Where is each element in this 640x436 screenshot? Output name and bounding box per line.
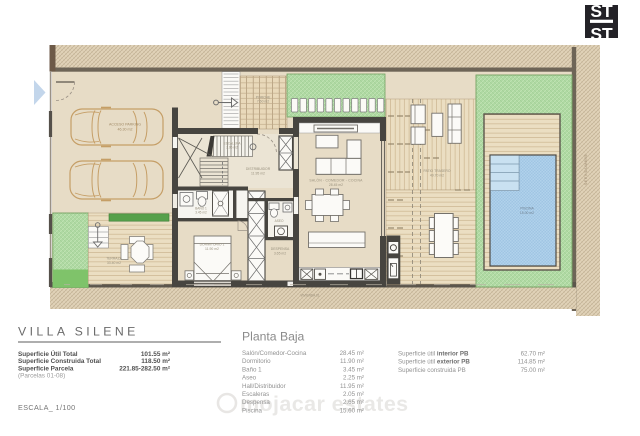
svg-text:28.45 m2: 28.45 m2 bbox=[329, 183, 343, 187]
svg-text:7.60 m2: 7.60 m2 bbox=[257, 100, 269, 104]
svg-text:Superficie construida PB: Superficie construida PB bbox=[398, 367, 466, 374]
svg-text:2.05 m2: 2.05 m2 bbox=[226, 146, 238, 150]
svg-text:2.05 m²: 2.05 m² bbox=[343, 391, 364, 398]
svg-text:Superficie Parcela: Superficie Parcela bbox=[18, 365, 74, 372]
svg-text:Salón/Comedor-Cocina: Salón/Comedor-Cocina bbox=[242, 350, 307, 357]
svg-text:TERRAZA: TERRAZA bbox=[106, 257, 123, 261]
svg-text:DORMITORIO 1: DORMITORIO 1 bbox=[200, 243, 225, 247]
svg-text:15.00 m2: 15.00 m2 bbox=[520, 211, 534, 215]
svg-text:PISCINA: PISCINA bbox=[520, 207, 534, 211]
svg-text:VILLA SILENE: VILLA SILENE bbox=[18, 325, 139, 339]
svg-text:11.95 m2: 11.95 m2 bbox=[251, 172, 265, 176]
svg-text:Superficie útil exterior PB: Superficie útil exterior PB bbox=[398, 359, 470, 366]
svg-text:DESPENSA: DESPENSA bbox=[271, 247, 290, 251]
svg-text:11.90 m²: 11.90 m² bbox=[340, 358, 364, 365]
svg-text:2.25 m²: 2.25 m² bbox=[343, 375, 364, 382]
svg-text:3.65 m2: 3.65 m2 bbox=[274, 252, 286, 256]
svg-text:2.65 m²: 2.65 m² bbox=[343, 399, 364, 406]
svg-text:33.40 m2: 33.40 m2 bbox=[107, 261, 121, 265]
svg-text:118.50 m²: 118.50 m² bbox=[141, 358, 170, 365]
svg-text:46.30 m2: 46.30 m2 bbox=[118, 128, 133, 132]
svg-text:75.00 m²: 75.00 m² bbox=[521, 367, 545, 374]
svg-text:Superficie Construida Total: Superficie Construida Total bbox=[18, 358, 101, 365]
svg-text:114.85 m²: 114.85 m² bbox=[518, 359, 545, 366]
svg-text:PATIO TRASERO: PATIO TRASERO bbox=[424, 169, 451, 173]
svg-text:Aseo: Aseo bbox=[242, 375, 257, 382]
svg-text:ACCESO PARKING: ACCESO PARKING bbox=[109, 123, 141, 127]
svg-text:3.45 m2: 3.45 m2 bbox=[195, 210, 207, 214]
svg-text:SERVIDUMBRE: SERVIDUMBRE bbox=[584, 153, 588, 185]
svg-text:11.95 m²: 11.95 m² bbox=[340, 383, 364, 390]
svg-text:221.85-282.50 m²: 221.85-282.50 m² bbox=[119, 365, 170, 372]
svg-text:ASEO: ASEO bbox=[275, 219, 284, 223]
svg-text:DISTRIBUIDOR: DISTRIBUIDOR bbox=[246, 167, 271, 171]
svg-text:Superficie Útil Total: Superficie Útil Total bbox=[18, 349, 78, 358]
svg-text:Planta Baja: Planta Baja bbox=[242, 330, 305, 344]
svg-text:62.70 m²: 62.70 m² bbox=[521, 351, 545, 358]
svg-text:VIVIENDA 01: VIVIENDA 01 bbox=[300, 294, 319, 298]
svg-text:Despensa: Despensa bbox=[242, 399, 270, 406]
svg-text:11.90 m2: 11.90 m2 bbox=[205, 247, 219, 251]
svg-text:ESCALA_ 1/100: ESCALA_ 1/100 bbox=[18, 403, 76, 412]
svg-text:Escaleras: Escaleras bbox=[242, 391, 269, 398]
svg-text:49.70 m2: 49.70 m2 bbox=[430, 174, 444, 178]
svg-text:101.55 m²: 101.55 m² bbox=[141, 351, 170, 358]
svg-text:SALÓN - COMEDOR - COCINA: SALÓN - COMEDOR - COCINA bbox=[309, 178, 363, 183]
svg-text:15.60 m²: 15.60 m² bbox=[340, 407, 364, 414]
svg-text:Baño 1: Baño 1 bbox=[242, 366, 262, 373]
svg-text:Piscina: Piscina bbox=[242, 407, 263, 414]
svg-text:28.45 m²: 28.45 m² bbox=[340, 350, 364, 357]
svg-text:Dormitorio: Dormitorio bbox=[242, 358, 271, 365]
svg-text:3.45 m²: 3.45 m² bbox=[343, 366, 364, 373]
svg-text:(Parcelas 01-08): (Parcelas 01-08) bbox=[18, 373, 65, 380]
svg-text:Hall/Distribuidor: Hall/Distribuidor bbox=[242, 383, 286, 390]
svg-text:Superficie útil interior PB: Superficie útil interior PB bbox=[398, 351, 469, 358]
